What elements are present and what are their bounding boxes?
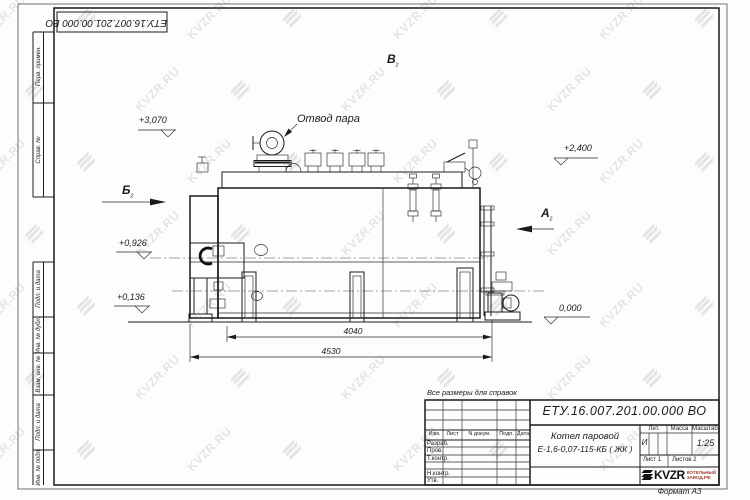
- top-designation: ЕТУ.16.007.201.00.000 ВО: [57, 12, 167, 32]
- tb-scale-value: 1:25: [692, 438, 719, 448]
- view-label-b: Б2: [122, 183, 133, 199]
- safety-hatches: [305, 149, 384, 172]
- tb-sheets-cell: Листов 2: [672, 457, 697, 463]
- frame-label-vzam-inv: Взам. инв. №: [36, 355, 42, 392]
- tb-sheet-value: 1: [658, 457, 661, 463]
- company-logo-cell: KVZR КОТЕЛЬНЫЙ ЗАВОД.РФ: [641, 466, 718, 484]
- view-label-v: В2: [387, 52, 398, 68]
- reference-note: Все размеры для справок: [427, 388, 517, 397]
- product-name-line1: Котел паровой: [531, 431, 639, 442]
- steam-outlet-leader: [284, 124, 297, 137]
- kvzr-logo-text: KVZR: [654, 468, 685, 482]
- view-letter: Б: [122, 183, 131, 197]
- tb-row-nkontr: Н.контр.: [427, 471, 450, 477]
- tb-scale-label: Масштаб: [691, 426, 719, 432]
- frame-label-perv-primen: Перв. примен.: [36, 46, 42, 86]
- elevation-marks: [114, 130, 598, 324]
- tb-header-dokum: N докум.: [462, 431, 497, 437]
- view-letter: А: [541, 206, 550, 220]
- tb-header-izm: Изм.: [426, 431, 443, 437]
- frame-label-podp-data-1: Подп. и дата: [36, 270, 42, 308]
- tb-row-utv: Утв.: [427, 478, 438, 484]
- feed-pump: [485, 272, 520, 320]
- boiler-body: [190, 172, 480, 318]
- product-name-line2: Е-1,6-0,07-115-КБ ( ЖК ): [531, 444, 639, 454]
- tb-header-list: Лист: [443, 431, 462, 437]
- tb-row-prov: Пров.: [427, 448, 443, 454]
- view-arrows: [102, 199, 554, 233]
- view-label-a: А2: [541, 206, 552, 222]
- dimension-overall-length: 4530: [316, 346, 346, 356]
- elevation-bottom-fitting: +0,136: [117, 292, 145, 302]
- frame-label-podp-data-2: Подп. и дата: [36, 403, 42, 441]
- tb-header-podp: Подп.: [497, 431, 516, 437]
- steam-dome: [286, 164, 301, 173]
- frame-label-inv-dubl: Инв. № дубл.: [36, 317, 42, 354]
- elevation-burner-axis: +0,926: [119, 238, 147, 248]
- frame-label-sprav-no: Справ. №: [36, 136, 42, 163]
- hatch: [368, 149, 384, 172]
- burner-unit: [189, 243, 244, 322]
- frame-label-inv-podl: Инв. № подл.: [36, 448, 42, 485]
- drawing-sheet: KVZR.RUKVZR.RUKVZR.RUKVZR.RUKVZR.RUKVZR.…: [0, 0, 750, 500]
- tb-sheets-label: Листов: [672, 457, 692, 463]
- hatch: [327, 149, 343, 172]
- water-gauge: [408, 174, 418, 222]
- water-gauges: [408, 174, 441, 222]
- tb-row-tkontr: Т.контр.: [427, 456, 449, 462]
- kvzr-logo-caption: КОТЕЛЬНЫЙ ЗАВОД.РФ: [687, 470, 716, 480]
- tb-lit-value: И: [640, 438, 649, 447]
- elevation-steam-outlet: +3,070: [139, 115, 167, 125]
- tb-sheet-cell: Лист 1: [643, 457, 661, 463]
- hatch: [349, 149, 365, 172]
- water-gauge: [431, 174, 441, 222]
- drawing-linework: [0, 0, 750, 500]
- support-legs: [242, 268, 473, 322]
- tb-sheet-label: Лист: [643, 457, 656, 463]
- view-sheet-ref: 2: [396, 62, 399, 68]
- tb-row-razrab: Разраб.: [427, 441, 449, 447]
- steam-valve-assembly: [253, 131, 291, 172]
- safety-lever-valve: [444, 140, 477, 188]
- format-note: Формат А3: [640, 487, 719, 496]
- tb-sheets-value: 2: [693, 457, 696, 463]
- tb-header-data: Дата: [516, 431, 530, 437]
- kvzr-logo-icon: [643, 469, 652, 481]
- view-sheet-ref: 2: [131, 193, 134, 199]
- title-block-designation: ЕТУ.16.007.201.00.000 ВО: [532, 404, 717, 418]
- platform-left-fitting: [197, 157, 208, 172]
- tb-mass-label: Масса: [667, 426, 692, 432]
- steam-outlet-label: Отвод пара: [297, 113, 360, 125]
- tb-lit-label: Лит.: [641, 426, 667, 432]
- hatch: [305, 149, 321, 172]
- logo-caption-line2: ЗАВОД.РФ: [687, 475, 711, 480]
- elevation-drum-top: +2,400: [564, 143, 592, 153]
- elevation-floor: 0,000: [559, 303, 582, 313]
- view-letter: В: [387, 52, 396, 66]
- view-sheet-ref: 2: [550, 216, 553, 222]
- dimension-boiler-length: 4040: [338, 326, 368, 336]
